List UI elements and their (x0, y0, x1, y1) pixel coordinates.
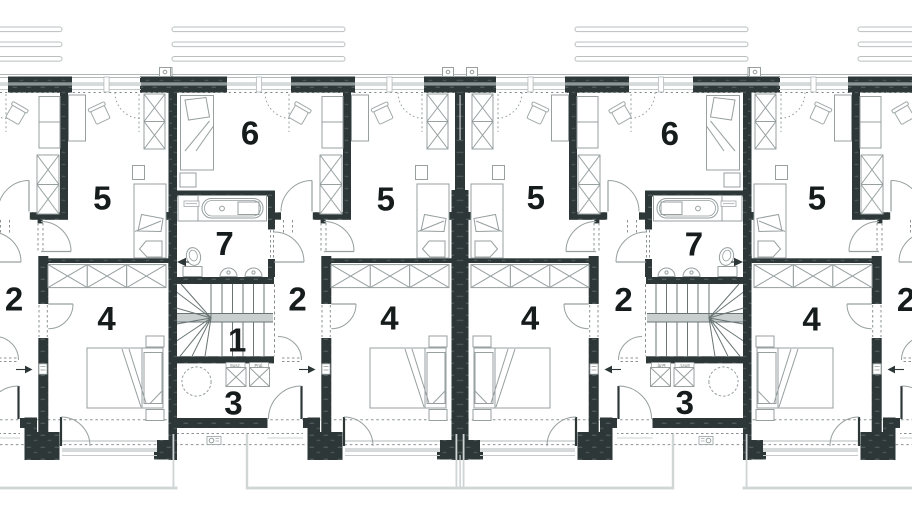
svg-text:1: 1 (228, 322, 246, 359)
svg-text:3: 3 (676, 384, 694, 421)
svg-text:5: 5 (808, 180, 826, 217)
svg-text:2: 2 (614, 281, 632, 318)
svg-text:6: 6 (661, 115, 679, 152)
svg-text:2: 2 (288, 281, 306, 318)
svg-text:3: 3 (224, 385, 242, 422)
svg-text:4: 4 (521, 300, 540, 337)
svg-text:4: 4 (97, 300, 116, 337)
svg-text:4: 4 (380, 300, 399, 337)
svg-text:7: 7 (215, 225, 233, 262)
svg-text:2: 2 (5, 281, 23, 318)
svg-text:7: 7 (685, 226, 703, 263)
svg-text:5: 5 (527, 179, 545, 216)
svg-text:6: 6 (241, 115, 259, 152)
svg-text:2: 2 (897, 281, 912, 318)
svg-text:4: 4 (802, 301, 821, 338)
svg-text:5: 5 (93, 180, 111, 217)
svg-text:5: 5 (377, 180, 395, 217)
